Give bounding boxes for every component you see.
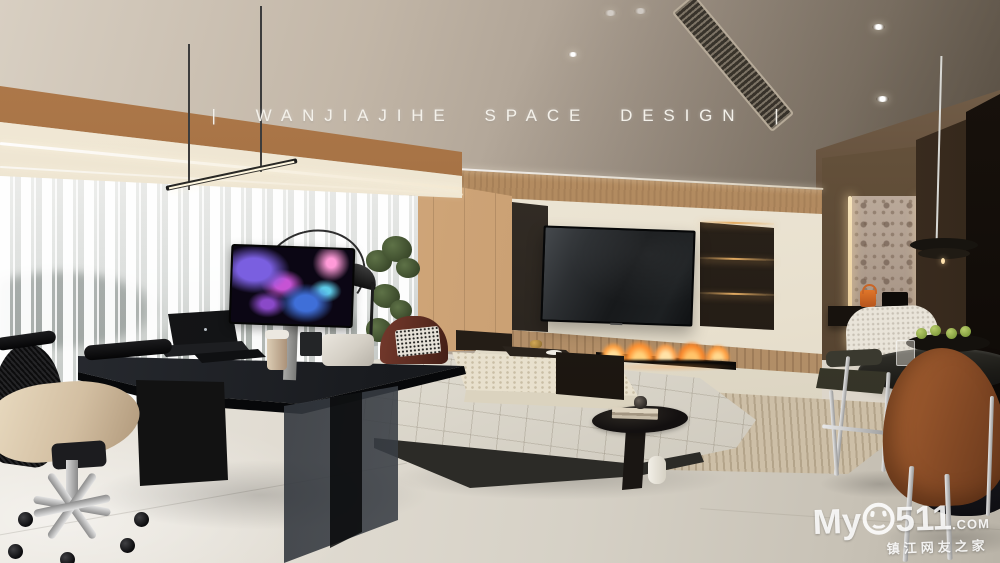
side-table-cylinder-leg [648,456,666,484]
caster-wheel [134,512,149,527]
wall-mounted-tv [540,225,695,326]
caster-wheel [120,538,135,553]
interior-render-scene: | WANJIAJIHE SPACE DESIGN | My511.COM 镇江… [0,0,1000,563]
small-sculpture [634,396,647,409]
recessed-downlight [568,52,578,57]
office-chair-mechanism [51,440,107,470]
recessed-downlight [876,96,889,102]
monitor [229,244,356,328]
caster-wheel [18,512,33,527]
patterned-pillow [395,326,442,357]
green-apple [960,326,971,337]
desk-black-box [300,332,322,356]
book-stack [612,407,658,420]
recessed-downlight [634,8,647,14]
pendant-bulb [941,258,945,264]
fireplace-flames [596,330,741,360]
caster-wheel [60,552,75,563]
overlay-title: | WANJIAJIHE SPACE DESIGN | [0,106,1000,126]
watermark-prefix: My [812,501,862,542]
caster-wheel [8,544,23,559]
pendant-wire [260,6,262,172]
gold-ornament [530,340,542,348]
coffee-cup-lid [265,330,289,339]
coffee-cup [267,336,287,370]
green-apple [930,325,941,336]
green-apple [916,328,927,339]
olive-chair-backrest [826,349,883,368]
smiley-face-icon [862,502,895,535]
mac-studio-cube [322,334,374,366]
watermark: My511.COM 镇江网友之家 [812,499,991,560]
tv-logo [610,323,622,325]
orange-bag-handle [862,284,877,294]
watermark-domain: .COM [952,516,990,532]
recessed-downlight [872,24,885,30]
laptop-logo [204,328,207,331]
monitor-wallpaper [231,246,354,326]
watermark-logo: My511.COM [812,499,990,540]
plant-foliage [396,258,420,278]
watermark-number: 511 [895,498,953,539]
recessed-downlight [604,10,617,16]
tv-screen [542,227,693,324]
green-apple [946,328,957,339]
pendant-lamp-disc [918,248,970,259]
